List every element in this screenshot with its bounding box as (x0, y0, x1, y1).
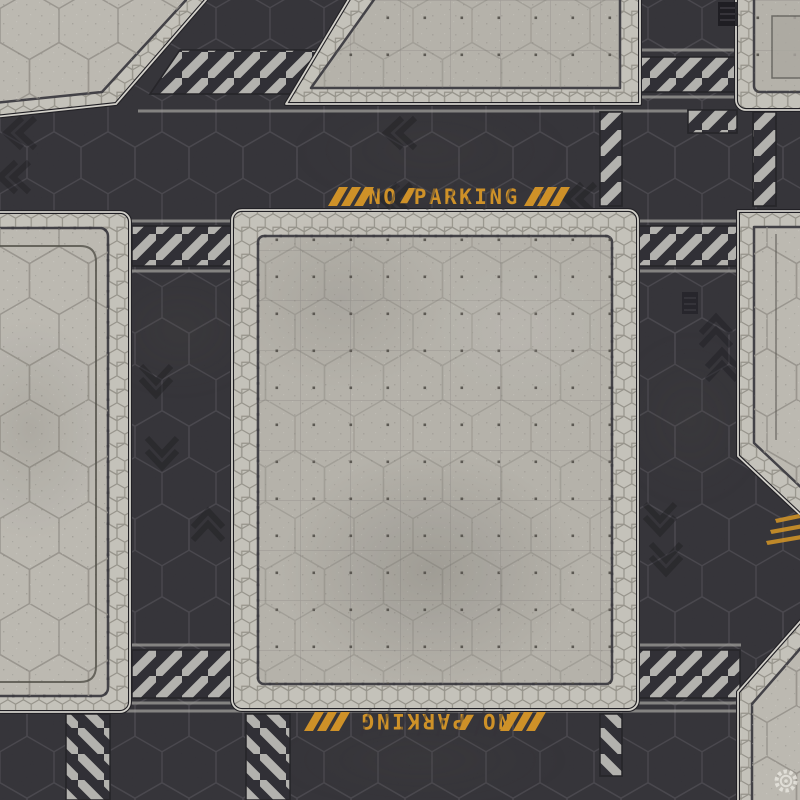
grain-overlay (0, 0, 800, 800)
gaming-mat-canvas: NO PARKING NO PARKING (0, 0, 800, 800)
scifi-gaming-mat: NO PARKING NO PARKING (0, 0, 800, 800)
